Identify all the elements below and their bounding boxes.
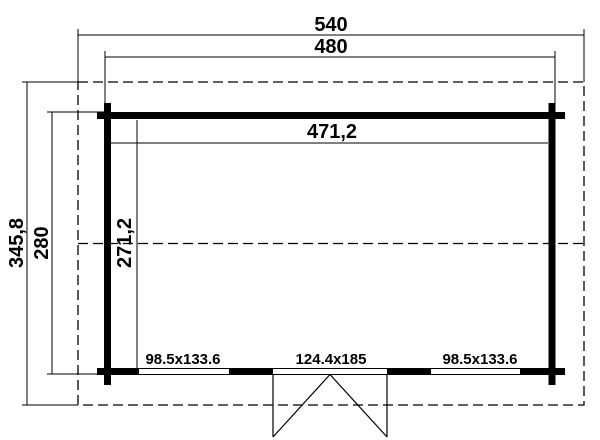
dim-inner-depth-label: 271,2 [114, 218, 136, 268]
door-leaf-left-line [273, 375, 330, 438]
window-left-frame [139, 369, 230, 375]
floor-plan-svg: 540 480 471,2 345,8 280 [0, 0, 600, 440]
dim-frame-depth-label: 280 [31, 226, 53, 259]
window-right-size-label: 98.5x133.6 [442, 351, 517, 368]
door-leaf-right-line [330, 375, 387, 438]
window-right-frame [431, 369, 521, 375]
openings [139, 369, 521, 438]
door-threshold [273, 369, 388, 375]
opening-labels: 98.5x133.6 124.4x185 98.5x133.6 [145, 351, 517, 368]
dim-frame-width-label: 480 [314, 36, 347, 58]
dim-overall-width-label: 540 [314, 14, 347, 36]
door-swing [273, 375, 387, 438]
window-left-size-label: 98.5x133.6 [145, 351, 220, 368]
floor-plan-drawing: 540 480 471,2 345,8 280 [0, 0, 600, 440]
walls [97, 103, 565, 385]
dim-inner-depth: 271,2 [114, 120, 137, 368]
dim-inner-width: 471,2 [111, 121, 548, 143]
dim-frame-width: 480 [105, 36, 555, 103]
door-size-label: 124.4x185 [296, 351, 367, 368]
dim-overall-depth-label: 345,8 [6, 218, 28, 268]
dim-inner-width-label: 471,2 [307, 121, 357, 143]
